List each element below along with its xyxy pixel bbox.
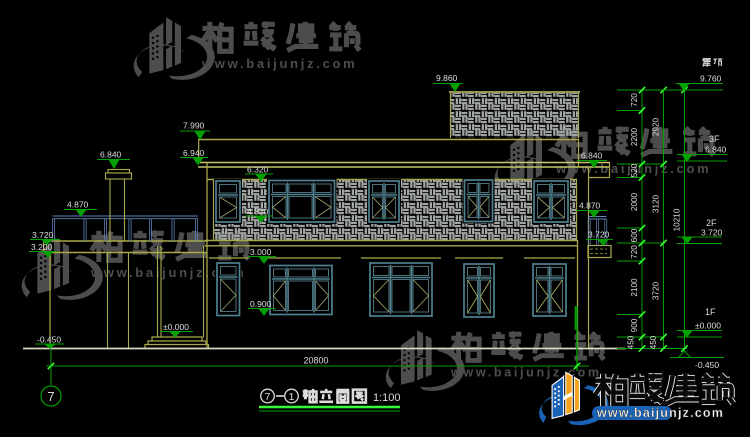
svg-text:7: 7	[265, 391, 271, 403]
svg-text:1: 1	[289, 391, 295, 403]
svg-text:0.900: 0.900	[250, 299, 272, 309]
svg-text:520: 520	[630, 163, 639, 177]
svg-text:6.320: 6.320	[247, 165, 269, 175]
svg-text:450: 450	[627, 335, 636, 349]
svg-text:4.320: 4.320	[247, 207, 269, 217]
svg-text:2200: 2200	[630, 127, 639, 146]
svg-text:900: 900	[630, 318, 639, 332]
svg-text:2000: 2000	[630, 192, 639, 211]
svg-text:20800: 20800	[303, 356, 328, 366]
svg-text:600: 600	[630, 228, 639, 242]
svg-text:4.870: 4.870	[579, 201, 601, 211]
svg-text:±0.000: ±0.000	[163, 322, 189, 332]
svg-text:www.baijunjz.com: www.baijunjz.com	[596, 406, 724, 420]
svg-text:6.940: 6.940	[183, 148, 205, 158]
svg-text:10210: 10210	[673, 208, 682, 231]
svg-text:4.870: 4.870	[67, 200, 89, 210]
svg-text:-0.450: -0.450	[37, 335, 61, 345]
svg-text:3.720: 3.720	[701, 228, 723, 238]
svg-text:3120: 3120	[652, 194, 661, 213]
svg-text:1:100: 1:100	[373, 392, 401, 404]
svg-text:www.baijunjz.com: www.baijunjz.com	[201, 56, 357, 71]
svg-text:720: 720	[630, 245, 639, 259]
svg-text:3720: 3720	[652, 281, 661, 300]
svg-text:3F: 3F	[709, 134, 720, 144]
svg-text:2920: 2920	[652, 117, 661, 136]
svg-text:3.000: 3.000	[250, 247, 272, 257]
svg-text:720: 720	[630, 93, 639, 107]
svg-text:3.200: 3.200	[31, 242, 53, 252]
svg-text:9.760: 9.760	[700, 74, 722, 84]
svg-text:2100: 2100	[630, 278, 639, 297]
svg-text:6.840: 6.840	[581, 151, 603, 161]
svg-text:-0.450: -0.450	[695, 360, 719, 370]
svg-text:6.840: 6.840	[100, 150, 122, 160]
svg-text:3.720: 3.720	[588, 230, 610, 240]
svg-text:2F: 2F	[706, 218, 717, 228]
svg-text:1F: 1F	[705, 307, 716, 317]
svg-text:9.860: 9.860	[436, 73, 458, 83]
svg-text:±0.000: ±0.000	[695, 321, 721, 331]
svg-text:www.baijunjz.com: www.baijunjz.com	[450, 366, 602, 380]
svg-text:7.990: 7.990	[183, 121, 205, 131]
svg-text:3.720: 3.720	[32, 230, 54, 240]
svg-text:7: 7	[47, 389, 54, 404]
svg-text:450: 450	[649, 335, 658, 349]
svg-text:6.840: 6.840	[705, 145, 727, 155]
